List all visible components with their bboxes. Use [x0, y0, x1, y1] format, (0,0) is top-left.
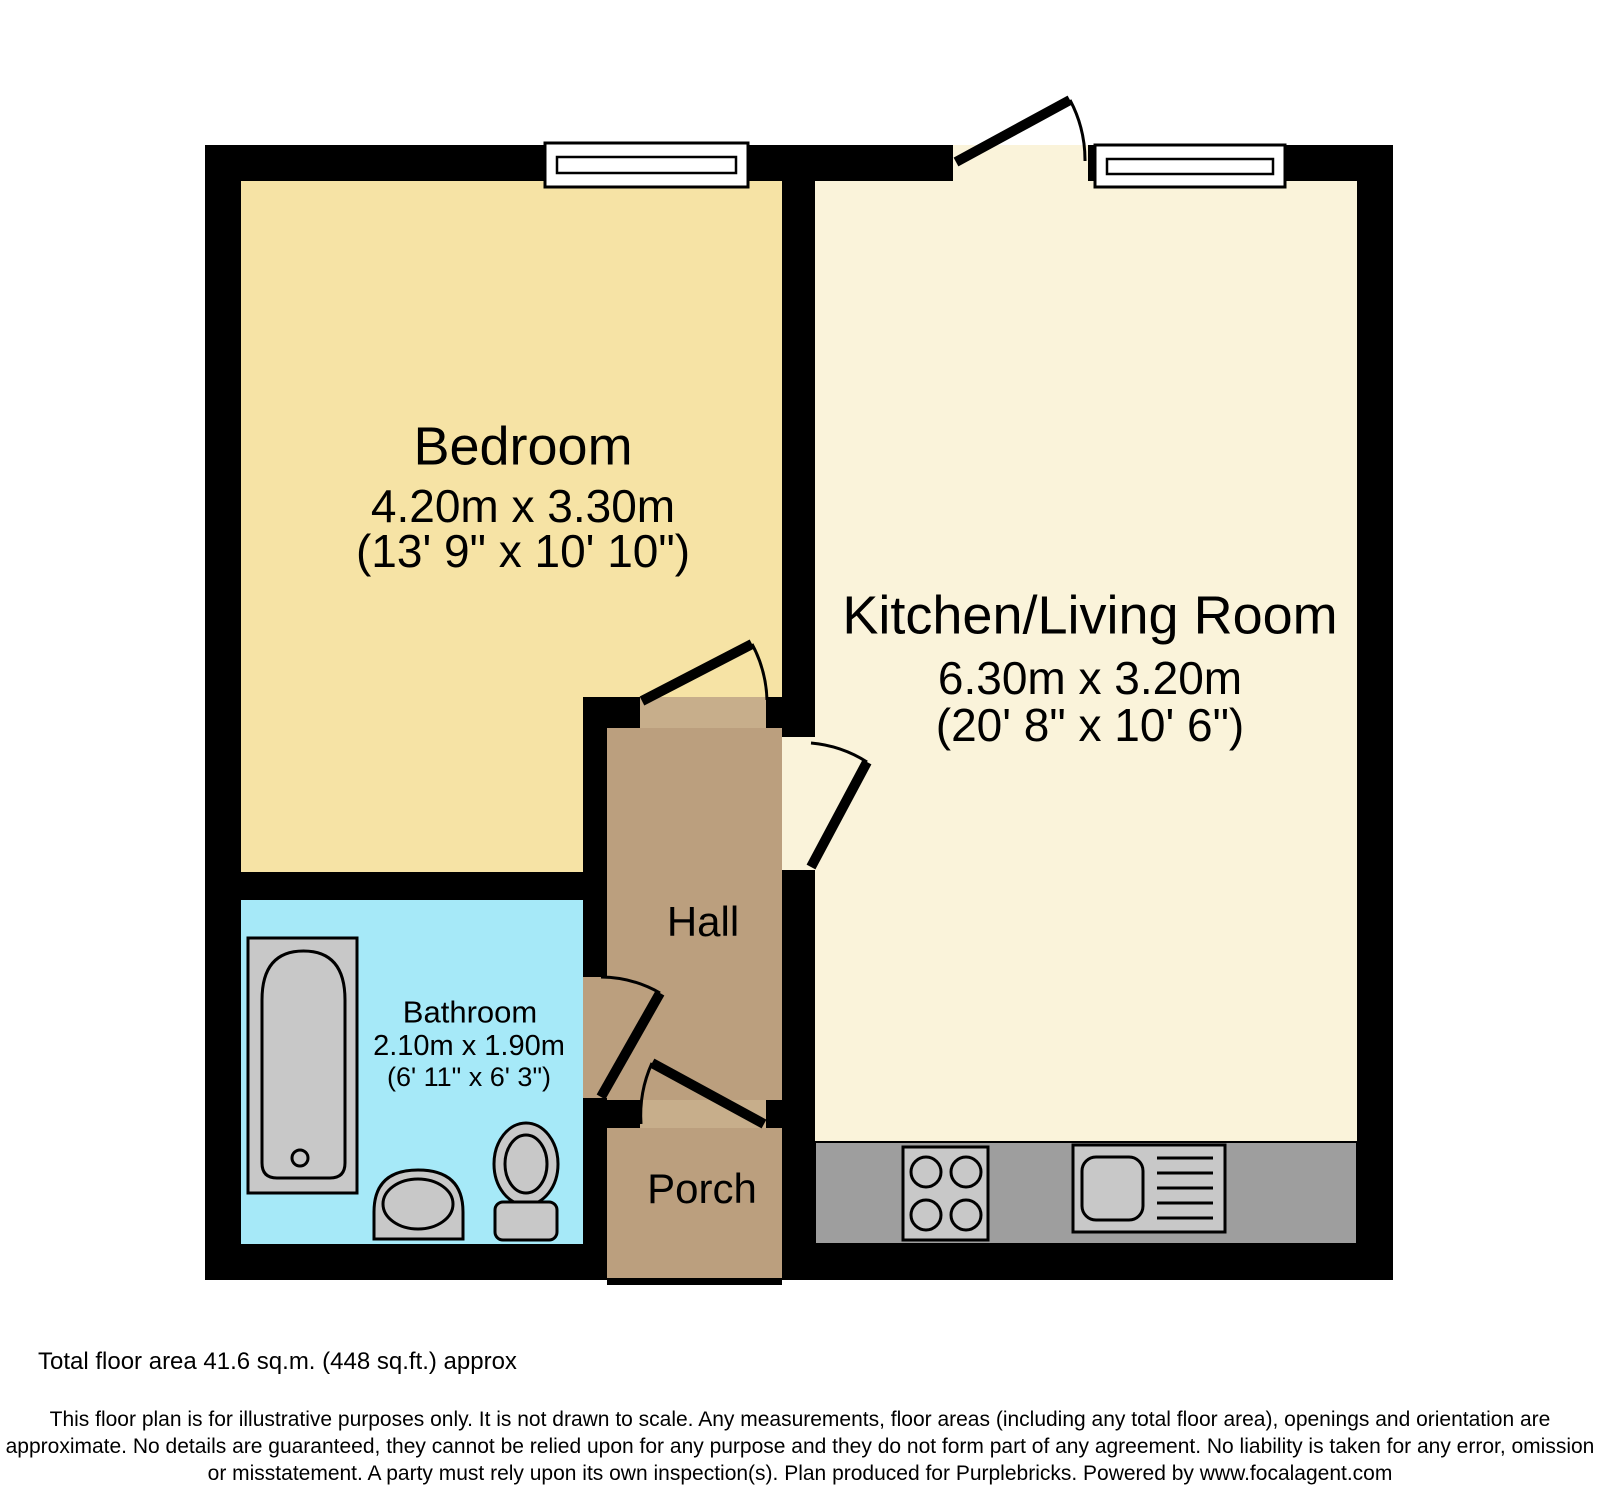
- bathroom-dims-imperial: (6' 11" x 6' 3"): [387, 1063, 551, 1091]
- kitchen-dims-imperial: (20' 8" x 10' 6"): [936, 701, 1244, 749]
- bedroom-dims-metric: 4.20m x 3.30m: [371, 482, 675, 530]
- opening-hall-bathroom: [583, 977, 607, 1098]
- wall-right: [1357, 145, 1393, 1280]
- kitchen-sink-icon: [1073, 1145, 1225, 1232]
- opening-hall-kitchen: [782, 737, 815, 870]
- porch-protrusion: [607, 1244, 782, 1278]
- bathtub-icon: [248, 938, 357, 1193]
- porch-label: Porch: [647, 1167, 757, 1211]
- floorplan-canvas: Bedroom 4.20m x 3.30m (13' 9" x 10' 10")…: [0, 0, 1600, 1501]
- window-icon: [545, 143, 748, 187]
- disclaimer-line: or misstatement. A party must rely upon …: [0, 1460, 1600, 1487]
- bedroom-label: Bedroom: [413, 419, 632, 476]
- bathroom-dims-metric: 2.10m x 1.90m: [373, 1031, 565, 1061]
- hob-icon: [903, 1147, 988, 1240]
- wall-bottom: [205, 1244, 1393, 1280]
- window-icon: [1095, 145, 1285, 187]
- wall-bedroom-bathroom: [205, 872, 607, 900]
- disclaimer-line: This floor plan is for illustrative purp…: [0, 1406, 1600, 1433]
- toilet-icon: [494, 1123, 558, 1240]
- disclaimer: This floor plan is for illustrative purp…: [0, 1406, 1600, 1487]
- total-floor-area: Total floor area 41.6 sq.m. (448 sq.ft.)…: [38, 1348, 517, 1376]
- hall-label: Hall: [667, 900, 739, 944]
- bedroom-dims-imperial: (13' 9" x 10' 10"): [356, 527, 690, 575]
- wall-hall-left: [583, 697, 607, 1244]
- kitchen-living-label: Kitchen/Living Room: [842, 588, 1337, 645]
- opening-bedroom-hall: [640, 697, 766, 728]
- bathroom-label: Bathroom: [403, 997, 537, 1030]
- pedestal-sink-icon: [374, 1170, 463, 1239]
- wall-left: [205, 145, 241, 1280]
- disclaimer-line: approximate. No details are guaranteed, …: [0, 1433, 1600, 1460]
- porch-bottom-edge: [607, 1278, 782, 1285]
- floorplan-drawing: [0, 0, 1600, 1501]
- kitchen-dims-metric: 6.30m x 3.20m: [938, 654, 1242, 702]
